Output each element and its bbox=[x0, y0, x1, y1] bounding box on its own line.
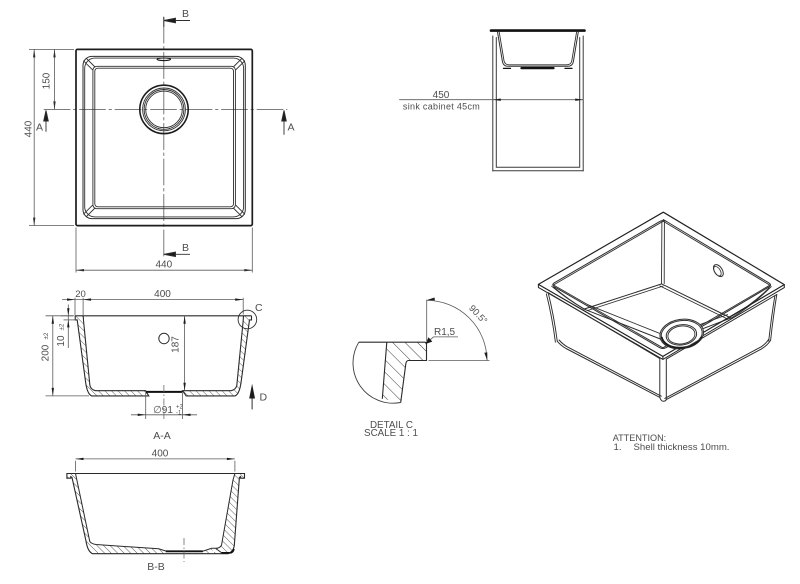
svg-text:∅91: ∅91 bbox=[153, 405, 173, 416]
svg-text:B: B bbox=[182, 8, 189, 20]
svg-text:-1: -1 bbox=[176, 411, 182, 417]
svg-text:150: 150 bbox=[42, 72, 53, 89]
svg-text:200: 200 bbox=[41, 344, 52, 361]
svg-text:90.5°: 90.5° bbox=[467, 303, 489, 326]
svg-text:400: 400 bbox=[154, 289, 171, 300]
svg-text:sink cabinet 45cm: sink cabinet 45cm bbox=[403, 101, 480, 111]
svg-text:440: 440 bbox=[24, 120, 35, 137]
svg-text:187: 187 bbox=[171, 336, 182, 353]
svg-text:20: 20 bbox=[75, 289, 86, 300]
svg-text:±2: ±2 bbox=[60, 323, 66, 330]
svg-text:450: 450 bbox=[433, 90, 450, 101]
svg-text:A-A: A-A bbox=[153, 430, 171, 442]
svg-text:B-B: B-B bbox=[147, 561, 165, 573]
svg-text:A: A bbox=[36, 122, 43, 134]
svg-text:B: B bbox=[182, 242, 189, 254]
svg-text:10: 10 bbox=[56, 335, 67, 347]
svg-text:R1,5: R1,5 bbox=[434, 327, 456, 338]
svg-text:C: C bbox=[255, 302, 263, 314]
svg-text:±2: ±2 bbox=[44, 332, 50, 339]
svg-text:400: 400 bbox=[152, 448, 169, 459]
svg-text:1.: 1. bbox=[614, 442, 622, 453]
svg-text:SCALE 1 : 1: SCALE 1 : 1 bbox=[364, 428, 418, 439]
svg-text:A: A bbox=[288, 122, 295, 134]
svg-text:440: 440 bbox=[155, 260, 172, 271]
svg-text:Shell thickness 10mm.: Shell thickness 10mm. bbox=[634, 442, 730, 453]
svg-text:D: D bbox=[260, 392, 268, 404]
